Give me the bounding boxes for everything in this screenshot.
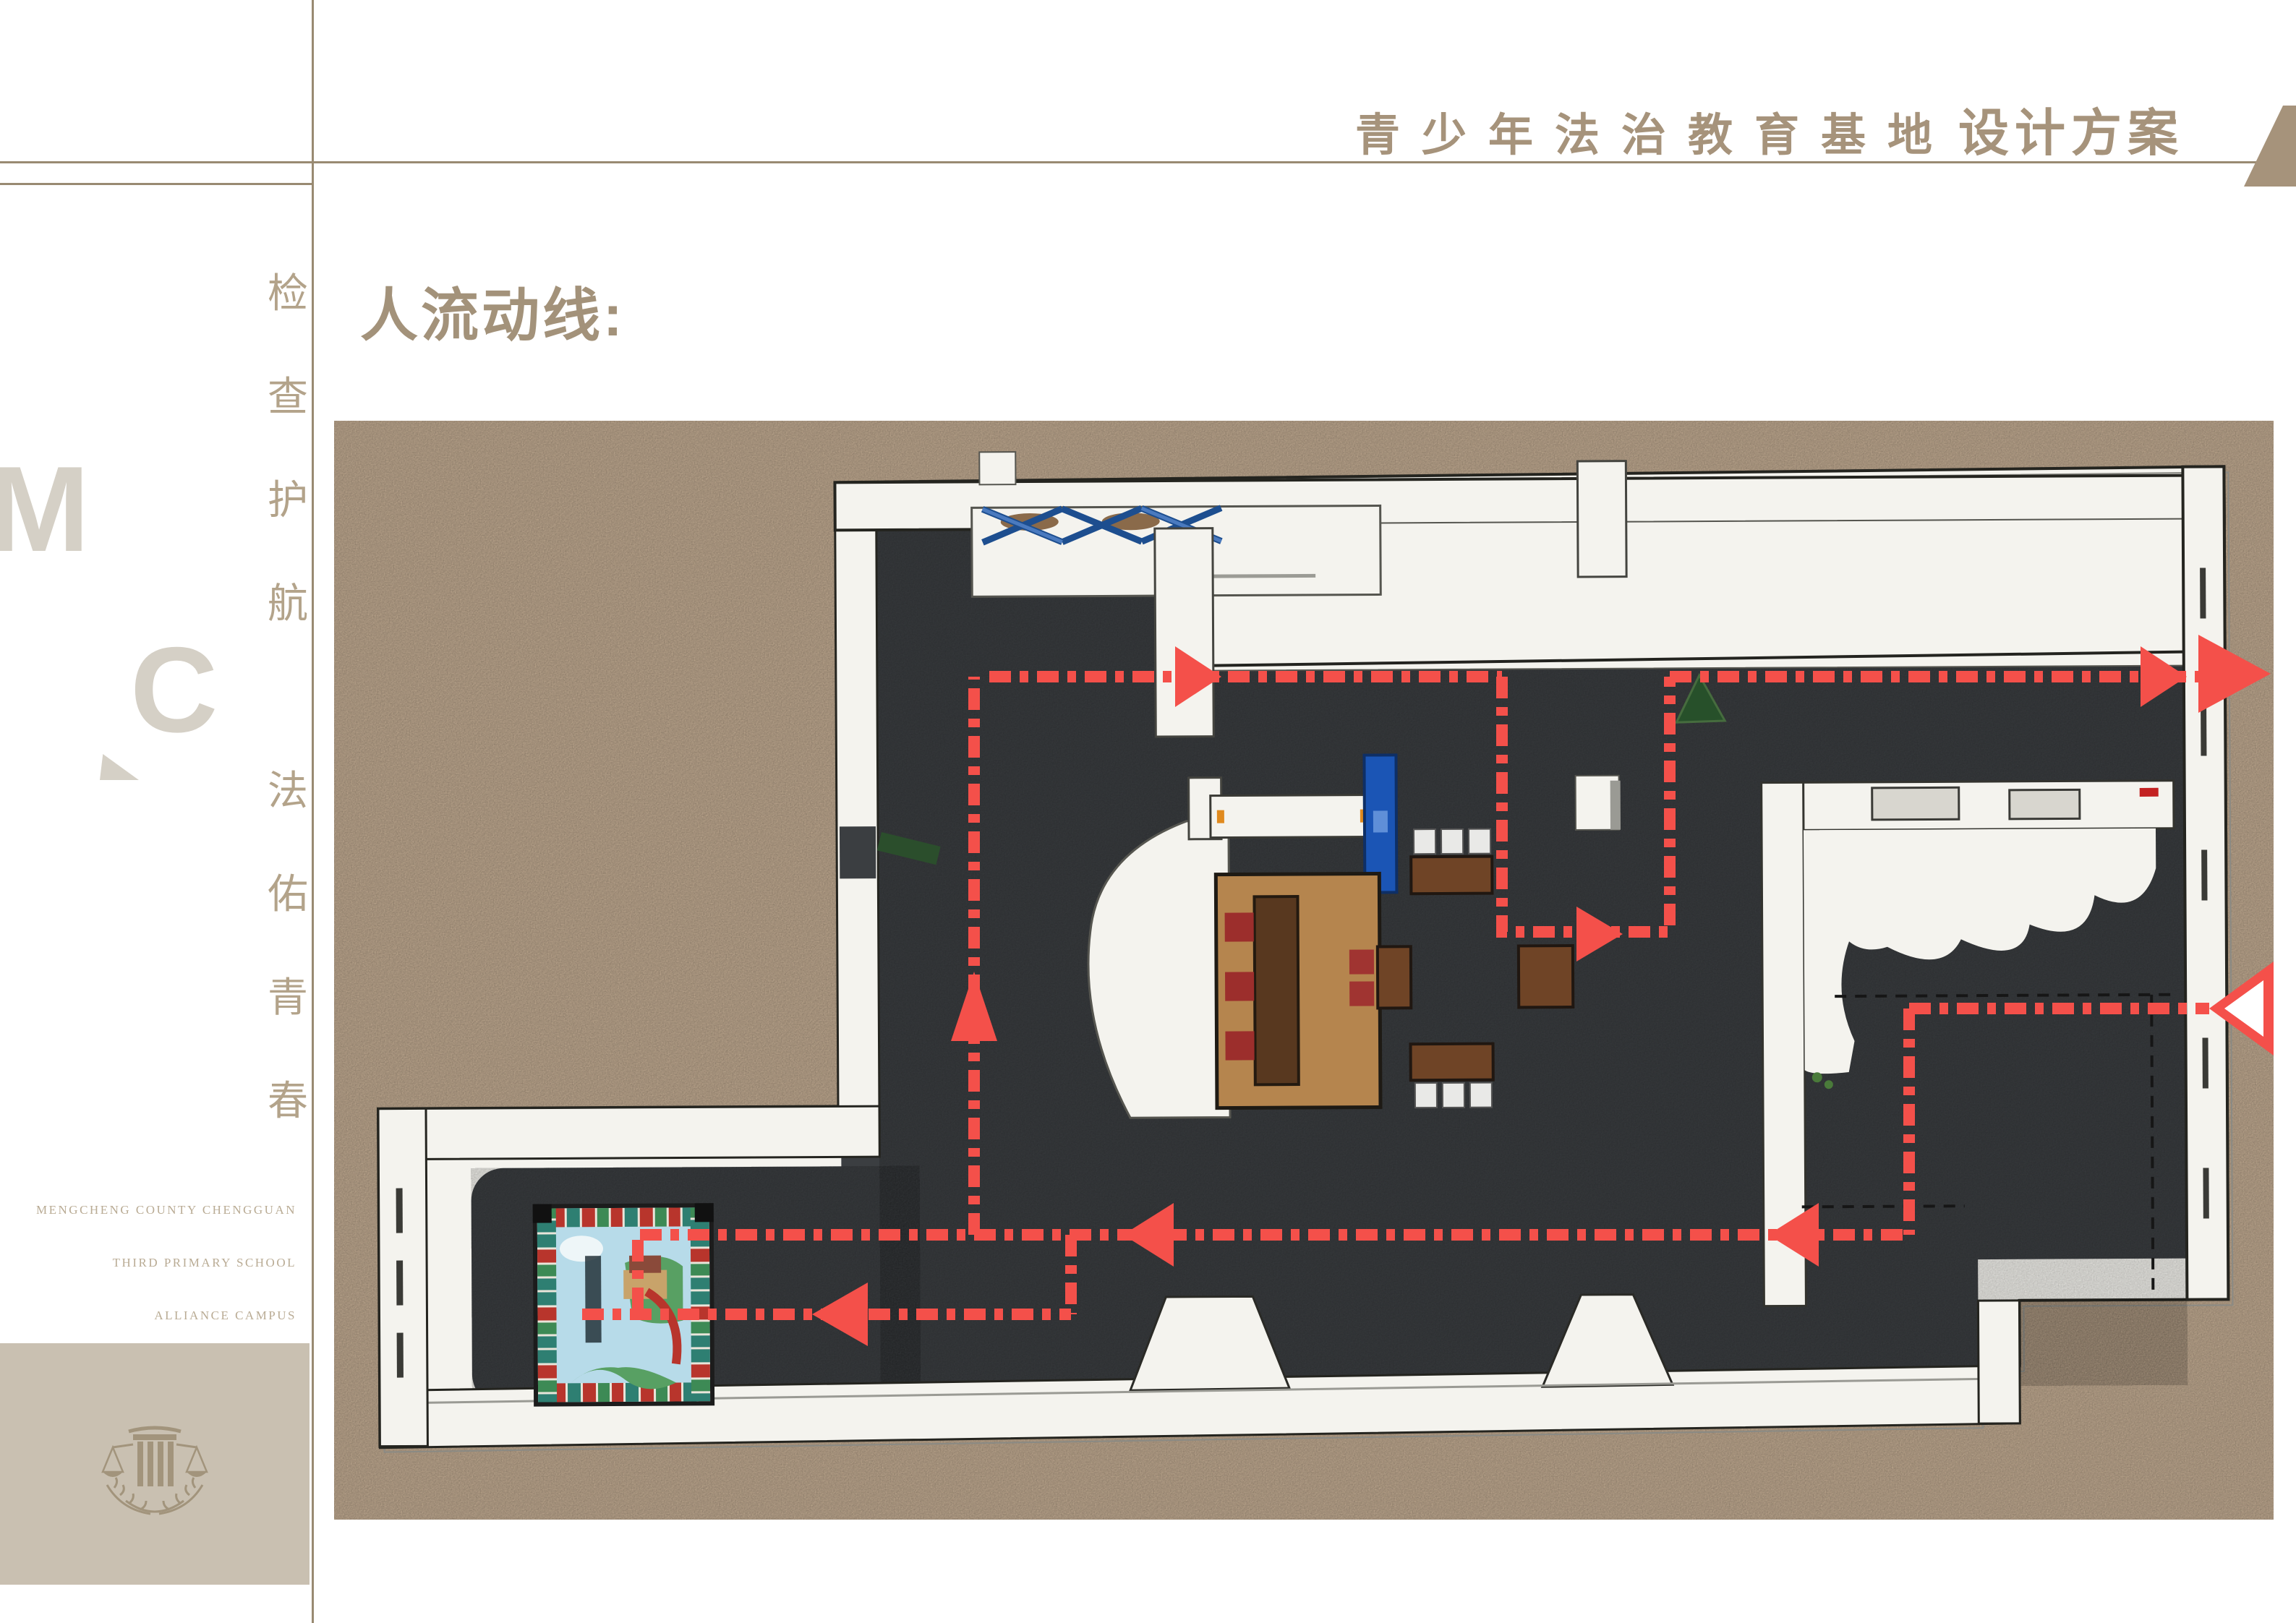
header: 青少年法治教育基地 设计方案: [1355, 93, 2253, 166]
slogan-char: 护: [263, 461, 313, 565]
school-name-line: THIRD PRIMARY SCHOOL: [0, 1256, 296, 1270]
partition-wall: [1211, 795, 1373, 837]
board-title-text: [585, 1256, 602, 1342]
game-board: [533, 1203, 714, 1406]
window: [1872, 787, 1959, 820]
slogan-char: 佑: [263, 855, 313, 959]
header-title-bold: 设计方案: [1958, 93, 2184, 166]
logo-letter-m: M: [0, 440, 90, 579]
table: [1519, 946, 1573, 1007]
header-title-serif: 青少年法治教育基地: [1355, 98, 1954, 163]
slogan-char: 查: [263, 358, 313, 461]
floor-plan: [334, 421, 2274, 1520]
slogan-char: 检: [263, 254, 313, 358]
slogan-vertical-top: 检查护航: [263, 254, 313, 668]
slide-page: 青少年法治教育基地 设计方案 M C 检查护航 法佑青春 MENGCHENG C…: [0, 0, 2296, 1623]
scales-of-justice-icon: [100, 1416, 210, 1524]
slogan-char: 法: [263, 752, 313, 855]
sidebar-rule: [0, 183, 312, 185]
table: [1411, 1044, 1493, 1081]
slogan-vertical-bottom: 法佑青春: [263, 752, 313, 1165]
slogan-char: 航: [263, 565, 313, 668]
school-name-line: MENGCHENG COUNTY CHENGGUAN: [0, 1203, 296, 1217]
school-name-english: MENGCHENG COUNTY CHENGGUAN THIRD PRIMARY…: [0, 1203, 296, 1361]
long-table: [1254, 896, 1298, 1084]
window: [2010, 789, 2080, 819]
footer-badge: [0, 1343, 310, 1585]
slogan-char: 春: [263, 1062, 313, 1165]
logo-letter-c: C: [130, 620, 218, 760]
table: [1378, 946, 1411, 1008]
page-title: 人流动线:: [360, 269, 626, 353]
school-name-line: ALLIANCE CAMPUS: [0, 1309, 296, 1323]
table: [1411, 857, 1492, 894]
slogan-char: 青: [263, 959, 313, 1062]
